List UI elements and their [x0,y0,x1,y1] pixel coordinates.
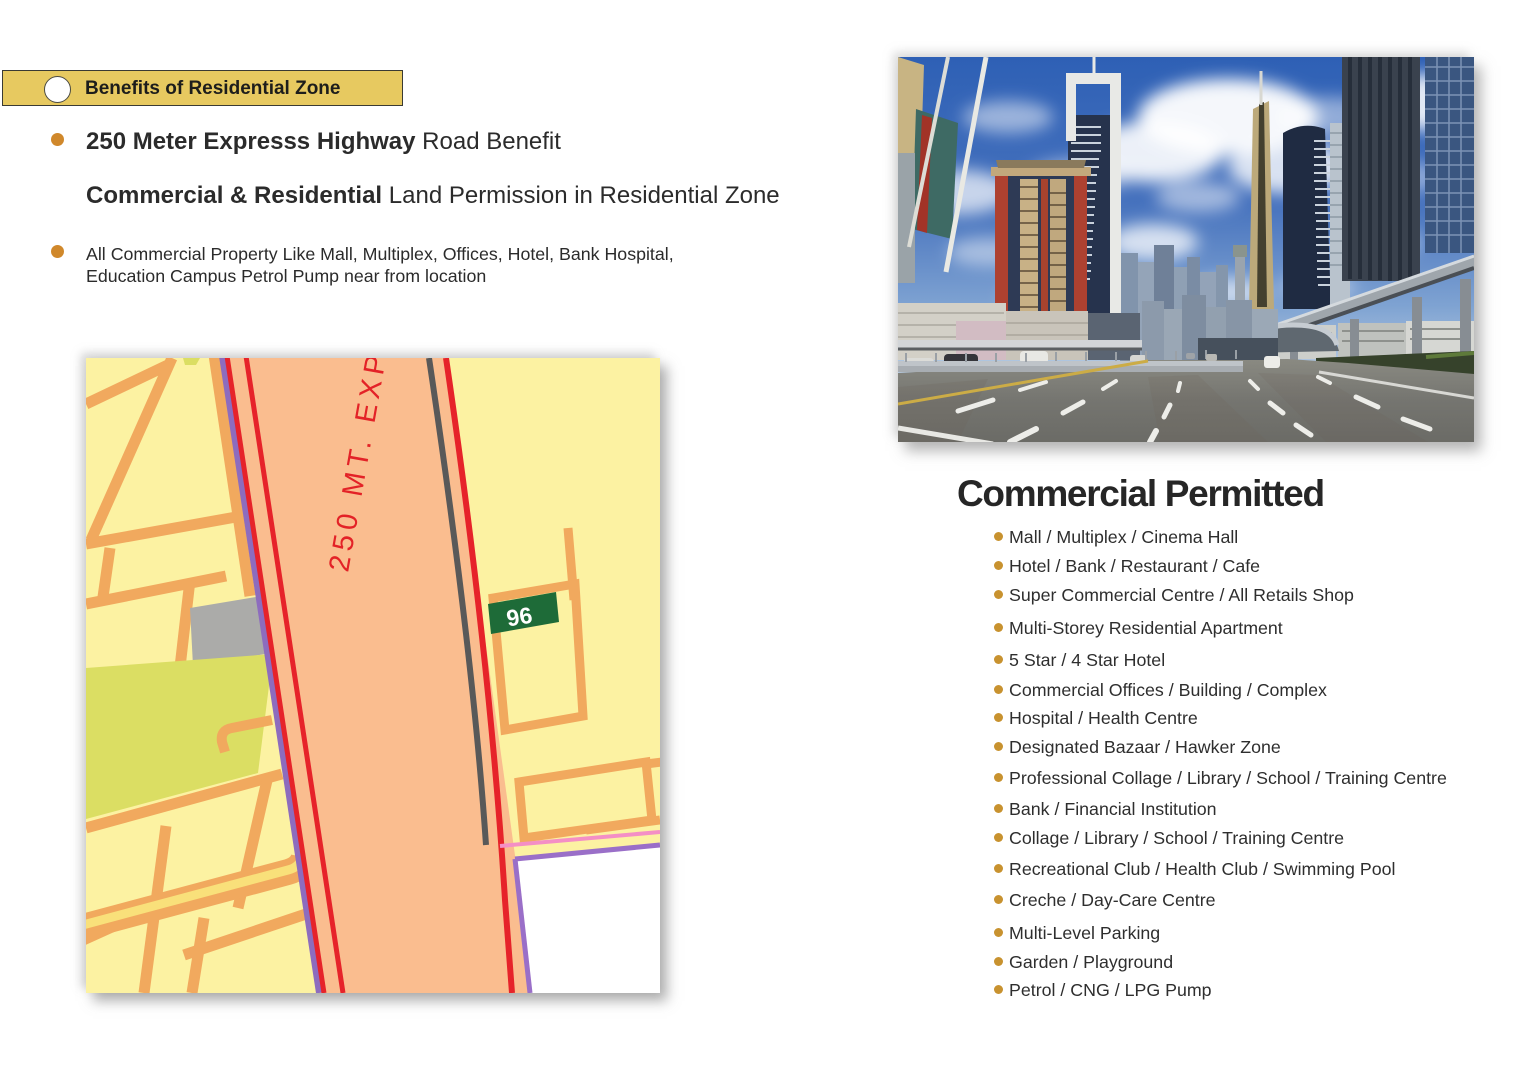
svg-text:96: 96 [505,602,534,632]
